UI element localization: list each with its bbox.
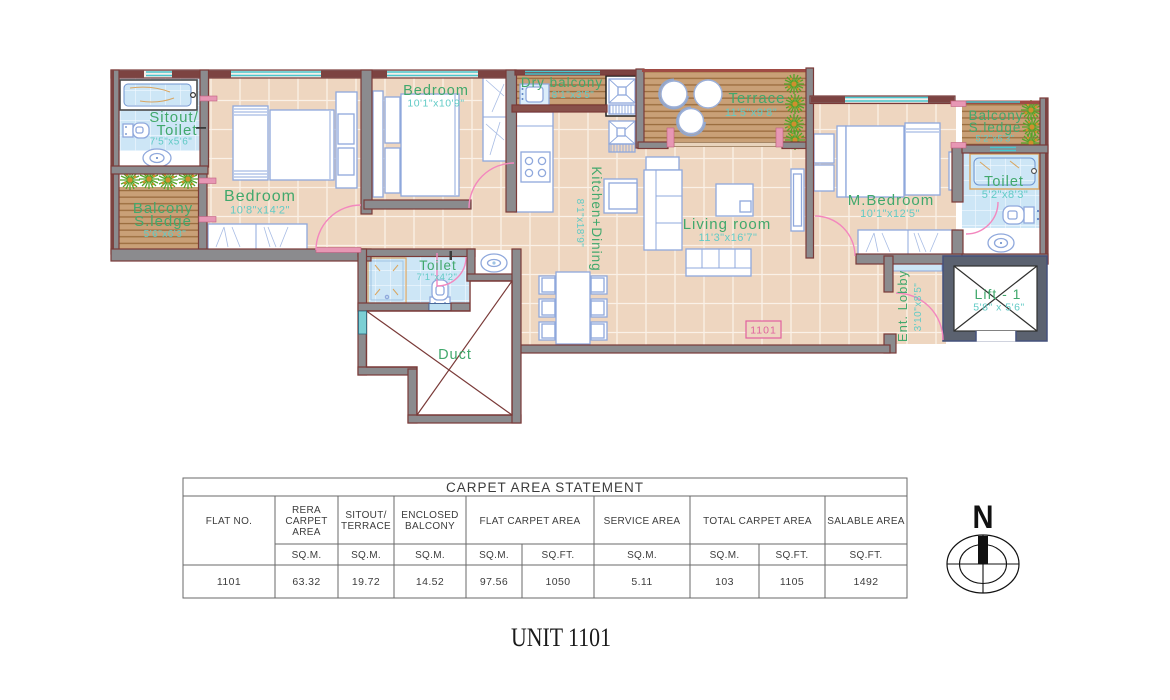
svg-text:RERA: RERA: [292, 505, 321, 516]
svg-text:Kitchen+Dining: Kitchen+Dining: [589, 166, 604, 271]
svg-text:5'2"x5'3": 5'2"x5'3": [976, 134, 1015, 144]
svg-text:5'6"x6'3": 5'6"x6'3": [144, 229, 187, 240]
svg-text:Toilet: Toilet: [419, 258, 457, 273]
svg-text:1101: 1101: [217, 576, 241, 588]
svg-text:SQ.M.: SQ.M.: [479, 550, 509, 561]
svg-text:FLAT NO.: FLAT NO.: [206, 516, 252, 527]
svg-text:BALCONY: BALCONY: [405, 521, 455, 532]
svg-text:SQ.FT.: SQ.FT.: [850, 550, 883, 561]
svg-text:3'10"x8'5": 3'10"x8'5": [913, 283, 924, 332]
svg-text:14.52: 14.52: [416, 576, 444, 588]
svg-text:Terrace: Terrace: [728, 90, 785, 107]
svg-text:63.32: 63.32: [292, 576, 320, 588]
svg-text:SQ.FT.: SQ.FT.: [776, 550, 809, 561]
svg-text:5.11: 5.11: [631, 576, 652, 588]
svg-text:Toilet: Toilet: [984, 174, 1024, 190]
svg-text:CARPET AREA STATEMENT: CARPET AREA STATEMENT: [446, 480, 644, 495]
svg-text:1101: 1101: [750, 325, 777, 337]
svg-text:CARPET: CARPET: [285, 516, 327, 527]
svg-text:SERVICE AREA: SERVICE AREA: [604, 516, 681, 527]
svg-text:SQ.M.: SQ.M.: [627, 550, 657, 561]
svg-text:AREA: AREA: [292, 527, 320, 538]
svg-text:1050: 1050: [546, 576, 571, 588]
svg-text:8'1"x3'5": 8'1"x3'5": [552, 90, 595, 101]
svg-text:SITOUT/: SITOUT/: [345, 510, 386, 521]
svg-text:10'1"x12'5": 10'1"x12'5": [860, 208, 920, 220]
svg-text:N: N: [973, 499, 994, 535]
svg-text:M.Bedroom: M.Bedroom: [848, 192, 935, 209]
svg-text:103: 103: [715, 576, 734, 588]
svg-text:Living room: Living room: [683, 216, 772, 233]
svg-text:97.56: 97.56: [480, 576, 508, 588]
svg-text:5'8" x 5'6": 5'8" x 5'6": [973, 302, 1024, 314]
svg-text:ENCLOSED: ENCLOSED: [401, 510, 458, 521]
svg-text:SQ.M.: SQ.M.: [710, 550, 740, 561]
svg-text:Dry balcony: Dry balcony: [521, 75, 603, 90]
svg-text:7'5"x5'6": 7'5"x5'6": [150, 137, 193, 148]
svg-text:UNIT 1101: UNIT 1101: [511, 623, 611, 652]
svg-text:8'1"x18'9": 8'1"x18'9": [574, 199, 585, 248]
svg-text:Lift - 1: Lift - 1: [975, 286, 1022, 302]
svg-text:10'1"x10'9": 10'1"x10'9": [407, 98, 464, 110]
svg-text:FLAT CARPET AREA: FLAT CARPET AREA: [480, 516, 581, 527]
svg-text:11'3"x16'7": 11'3"x16'7": [699, 232, 758, 244]
svg-text:10'8"x14'2": 10'8"x14'2": [230, 205, 290, 217]
svg-text:SQ.M.: SQ.M.: [351, 550, 381, 561]
svg-text:SQ.M.: SQ.M.: [292, 550, 322, 561]
svg-text:SQ.FT.: SQ.FT.: [542, 550, 575, 561]
svg-text:19.72: 19.72: [352, 576, 380, 588]
svg-text:S.ledge: S.ledge: [134, 213, 192, 230]
svg-text:SALABLE AREA: SALABLE AREA: [827, 516, 905, 527]
svg-text:1492: 1492: [854, 576, 879, 588]
svg-text:Ent. Lobby: Ent. Lobby: [895, 270, 910, 342]
svg-text:Duct: Duct: [438, 347, 472, 363]
svg-text:Bedroom: Bedroom: [224, 188, 296, 205]
svg-text:11'5"x9'8": 11'5"x9'8": [725, 107, 777, 119]
svg-text:TOTAL CARPET AREA: TOTAL CARPET AREA: [703, 516, 812, 527]
svg-text:TERRACE: TERRACE: [341, 521, 391, 532]
svg-text:7'1"x4'2": 7'1"x4'2": [417, 272, 458, 283]
svg-text:5'2"x8'3": 5'2"x8'3": [982, 189, 1028, 201]
svg-text:SQ.M.: SQ.M.: [415, 550, 445, 561]
svg-text:1105: 1105: [780, 576, 804, 588]
